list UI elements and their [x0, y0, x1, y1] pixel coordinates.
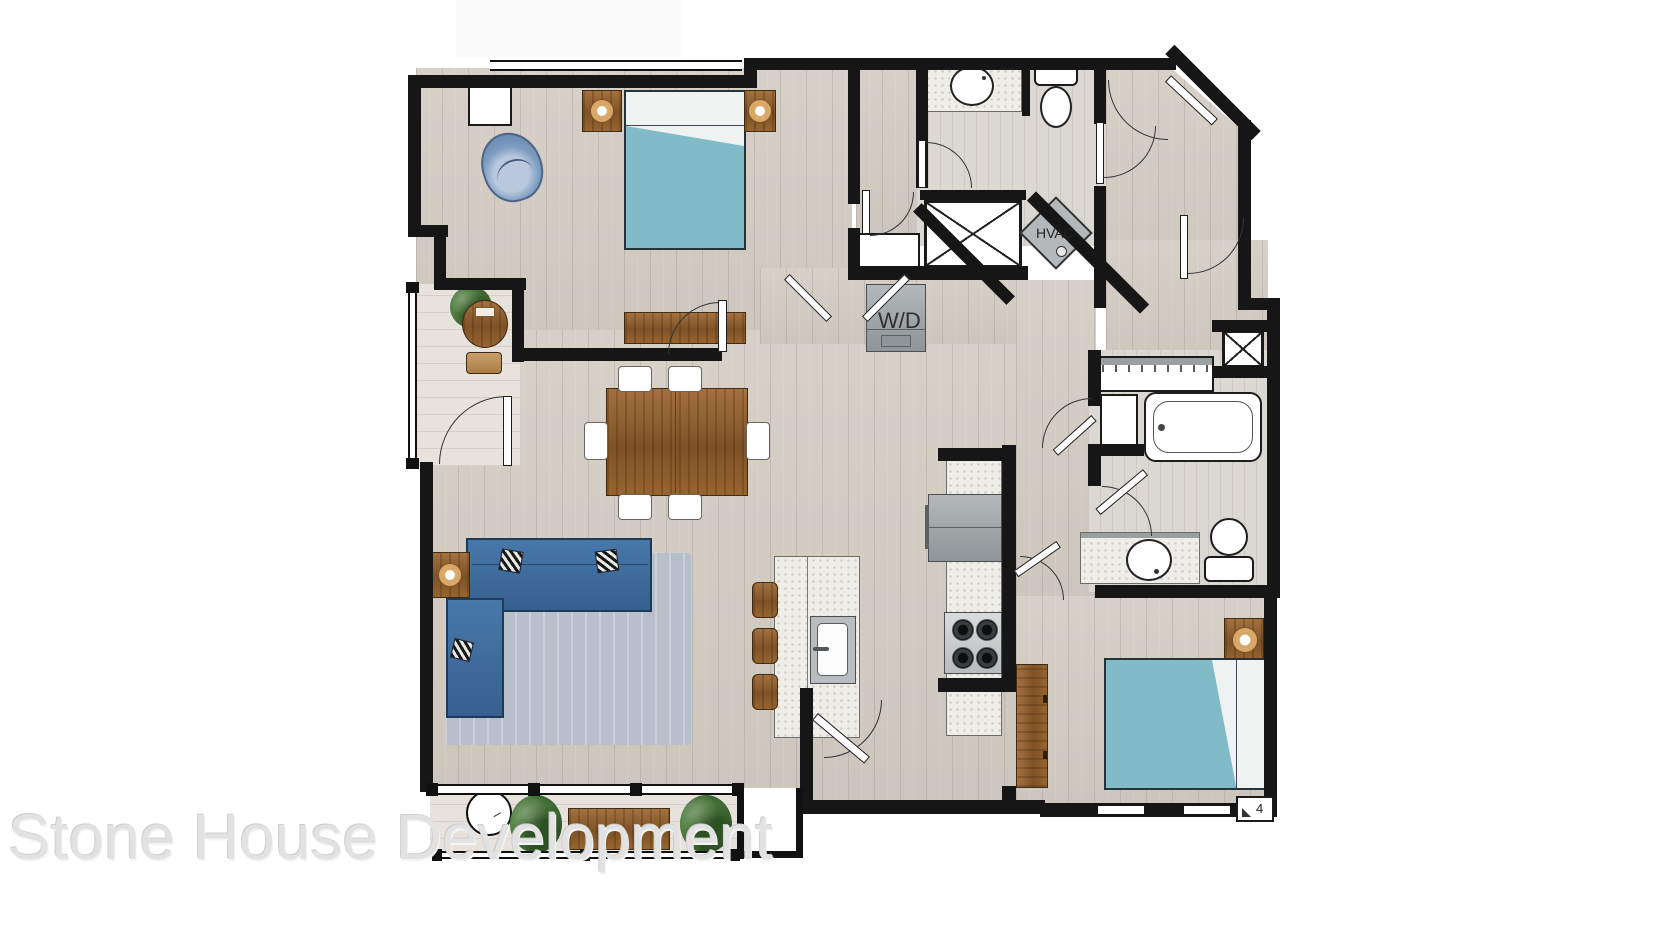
wall-kitchen-back-upper: [1002, 445, 1016, 690]
wall-closet-top: [920, 190, 1026, 200]
bathtub-inner: [1153, 401, 1253, 453]
stove-burner-2: [976, 619, 998, 641]
bathroom1-sink: [950, 66, 994, 106]
balcony-rail-post-top: [406, 282, 419, 293]
master-closet-hangers: [1102, 365, 1210, 372]
wall-bath1-entry-upper: [1094, 58, 1106, 124]
wall-right-upper: [1238, 120, 1251, 310]
bedroom1-armchair-seat: [493, 154, 540, 198]
living-lamp: [438, 563, 462, 587]
bedroom2-bed-fold: [1212, 660, 1236, 786]
wall-shaft-bottom: [1212, 366, 1280, 378]
wall-left-living: [420, 462, 433, 792]
stove-burner-1: [952, 619, 974, 641]
dining-chair-bottom-1: [618, 494, 652, 520]
washer-dryer-control: [881, 335, 911, 347]
master-closet: [1098, 356, 1214, 392]
bathroom1-door-leaf: [918, 140, 926, 188]
bathroom1-toilet-bowl: [1040, 86, 1072, 128]
bedroom1-bed-fold: [626, 126, 744, 146]
wall-bath1-entry-lower: [1094, 186, 1106, 308]
living-window-wall: [426, 784, 744, 795]
hvac-dot: [1056, 246, 1067, 257]
dining-table-grain: [675, 391, 676, 493]
living-window-post-2: [528, 783, 540, 796]
bedroom1-bed-pillows: [626, 92, 744, 126]
bathroom1-sink-drain: [982, 76, 986, 80]
bathroom2-toilet-tank: [1204, 556, 1254, 582]
bedroom1-window: [490, 60, 742, 71]
bedroom2-dresser-handle-1: [1043, 695, 1047, 703]
wall-bath1-divider: [1022, 58, 1030, 116]
refrigerator-handle: [925, 505, 929, 549]
right-corridor-door-leaf: [1180, 215, 1188, 279]
wall-corridor-stub-h: [938, 678, 1016, 692]
kitchen-sink: [810, 616, 856, 684]
dining-chair-left: [584, 422, 608, 460]
wall-shaft-top: [1212, 320, 1280, 332]
bathroom2-sink-drain: [1154, 569, 1159, 574]
sofa-pillow-1: [498, 548, 523, 573]
bedroom2-bed-pillows: [1236, 660, 1264, 788]
floor-plan-page: { "floor_plan": { "appliance_labels": { …: [0, 0, 1680, 945]
bedroom2-dresser: [1016, 664, 1048, 788]
wall-left-bedroom1: [408, 75, 421, 230]
faded-logo-area: [456, 0, 682, 57]
wall-hall-masterbath-h: [1088, 444, 1144, 456]
shaft-closet: [1222, 330, 1264, 368]
balcony-rail-post-bottom: [406, 458, 419, 469]
bathtub-faucet: [1158, 424, 1165, 431]
bathtub: [1144, 392, 1262, 462]
watermark-text: Stone House Development: [8, 800, 773, 874]
stove-burner-4: [976, 647, 998, 669]
living-window-post-1: [426, 783, 438, 796]
balcony-door-leaf: [503, 396, 512, 466]
hall-closet: [856, 233, 920, 269]
kitchen-stool-2: [752, 628, 778, 664]
corner-marker-box: [1236, 796, 1274, 822]
dining-chair-top-2: [668, 366, 702, 392]
living-window-post-3: [630, 783, 642, 796]
bedroom1-lamp-left: [590, 99, 614, 123]
wall-right-bedroom2: [1264, 590, 1277, 816]
bedroom2-bed: [1104, 658, 1266, 790]
hvac-label: HVAC: [1036, 226, 1074, 240]
bedroom1-closet: [468, 86, 512, 126]
dining-table: [606, 388, 748, 496]
stove: [944, 612, 1002, 674]
bottom-window-gap-2: [1184, 806, 1230, 814]
kitchen-sink-faucet: [813, 647, 829, 651]
stove-burner-3: [952, 647, 974, 669]
bathroom1-hall-door-leaf: [1096, 122, 1104, 184]
balcony-table-plate: [475, 307, 495, 317]
sofa-pillow-2: [595, 549, 620, 574]
wall-bath2-bedroom2: [1095, 585, 1267, 598]
bedroom1-door-leaf: [718, 300, 727, 352]
living-window-post-4: [732, 783, 744, 796]
wall-top-main: [744, 58, 1176, 70]
corner-marker-triangle: [1242, 808, 1251, 817]
wall-under-closets: [848, 266, 1028, 280]
wall-top-bedroom1: [408, 75, 756, 88]
kitchen-stool-3: [752, 674, 778, 710]
bedroom2-lamp: [1232, 627, 1258, 653]
bedroom2-dresser-handle-2: [1043, 751, 1047, 759]
dining-chair-top-1: [618, 366, 652, 392]
washer-dryer-label: W/D: [878, 310, 921, 332]
refrigerator: [928, 494, 1002, 562]
balcony-table: [462, 300, 508, 348]
bottom-window-gap-1: [1098, 806, 1144, 814]
balcony-rail-left: [408, 284, 417, 466]
kitchen-stool-1: [752, 582, 778, 618]
bedroom1-bed: [624, 90, 746, 250]
wall-right-protrusion: [1267, 298, 1280, 598]
dining-chair-right: [746, 422, 770, 460]
refrigerator-door-split: [929, 527, 1001, 528]
corner-marker-label: 4: [1256, 802, 1263, 815]
balcony-chair: [466, 352, 502, 374]
bathroom2-toilet-bowl: [1210, 518, 1248, 556]
bedroom1-lamp-right: [748, 99, 772, 123]
dining-chair-bottom-2: [668, 494, 702, 520]
wall-core-left: [848, 58, 860, 204]
hall-closet-door-leaf: [862, 190, 870, 234]
bathroom2-sink: [1126, 539, 1172, 581]
master-closet-shelf-edge: [1100, 358, 1212, 365]
wall-kitchen-back-lower: [1002, 786, 1016, 807]
